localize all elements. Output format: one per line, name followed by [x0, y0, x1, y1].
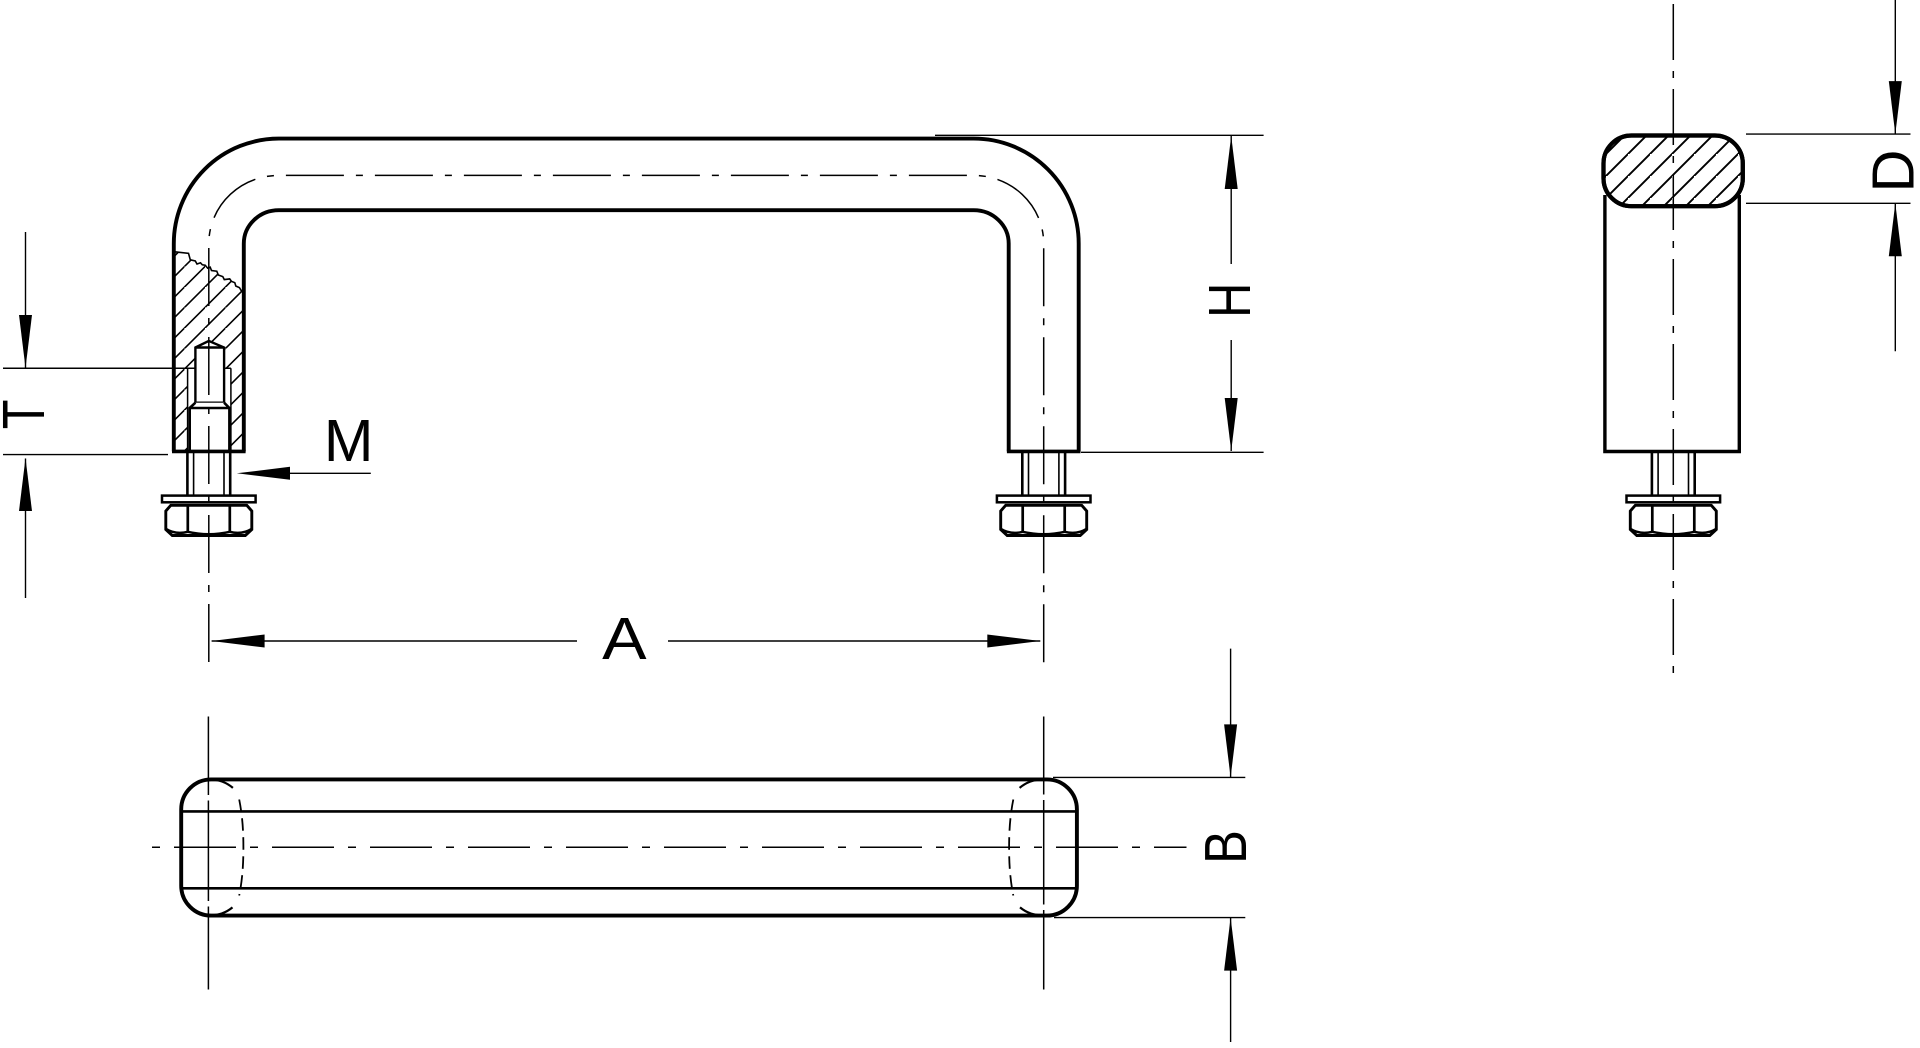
svg-text:M: M [324, 407, 374, 474]
svg-text:B: B [1192, 830, 1259, 864]
svg-text:H: H [1196, 283, 1263, 318]
svg-text:T: T [0, 399, 57, 429]
svg-text:A: A [602, 606, 646, 672]
svg-text:D: D [1860, 150, 1920, 193]
